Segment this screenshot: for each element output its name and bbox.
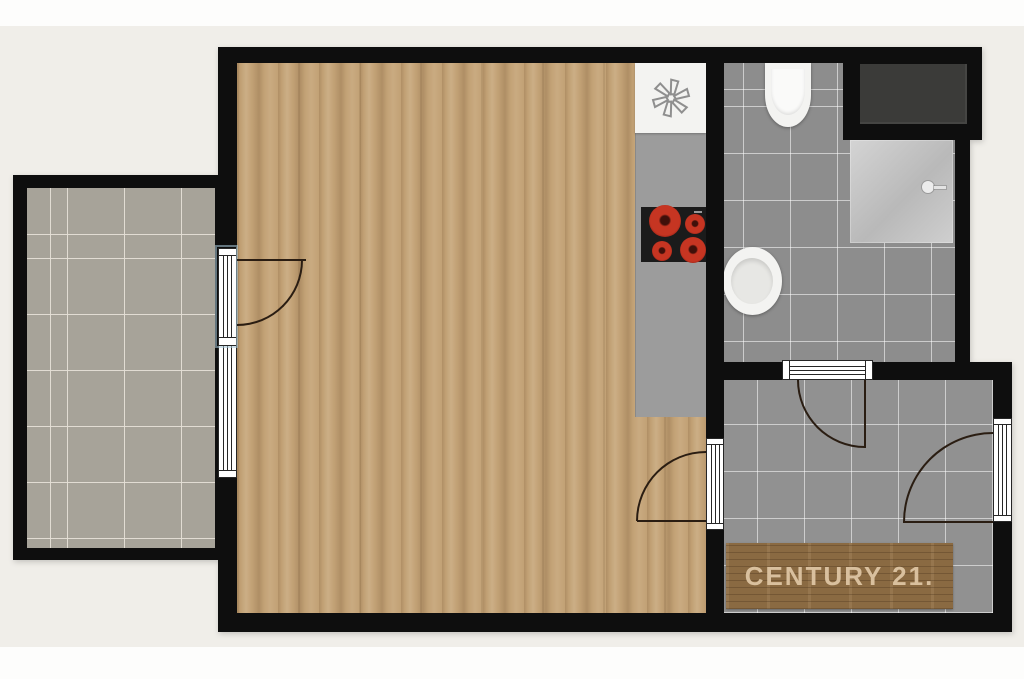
wall-hall-top-left: [724, 362, 782, 380]
burner-icon: [680, 237, 706, 263]
burner-icon: [685, 214, 705, 234]
burner-icon: [652, 241, 672, 261]
toilet-icon: [765, 63, 811, 127]
balcony-door-highlight: [215, 245, 238, 348]
washbasin-icon: [723, 247, 782, 315]
wall-bathroom-right: [955, 140, 970, 362]
shower-arm-icon: [934, 186, 946, 189]
wall-bottom: [218, 613, 1012, 632]
utility-closet-floor: [860, 64, 967, 124]
shower-head-icon: [922, 181, 934, 193]
entry-mat: CENTURY 21.: [726, 543, 953, 609]
stove-cooktop-icon: [641, 207, 706, 262]
frame-cap: [706, 523, 724, 530]
balcony-floor: [27, 188, 215, 548]
frame-cap: [993, 418, 1012, 425]
wall-hall-right-lower: [993, 522, 1012, 613]
frame-cap: [218, 470, 237, 478]
shower-stall: [850, 140, 953, 243]
frame-cap: [782, 360, 790, 380]
century21-watermark: CENTURY 21.: [745, 561, 935, 592]
wall-top: [218, 47, 982, 63]
frame-cap: [993, 515, 1012, 522]
frame-cap: [865, 360, 873, 380]
kitchen-sink: [635, 63, 706, 133]
sink-drain-icon: [635, 63, 706, 133]
wall-hall-left-lower: [706, 530, 724, 613]
floor-plan: CENTURY 21.: [0, 0, 1024, 679]
frame-cap: [706, 438, 724, 445]
burner-icon: [649, 205, 681, 237]
entry-door-frame: [993, 418, 1012, 522]
wall-hall-right-upper: [993, 378, 1012, 418]
wall-left-upper: [218, 63, 237, 248]
wall-left-lower: [218, 478, 237, 613]
wall-kitchen-bathroom: [706, 63, 724, 362]
bathroom-door-frame: [782, 360, 873, 380]
hallway-door-frame: [706, 438, 724, 530]
wall-hall-left-upper: [706, 362, 724, 438]
floor-plan-canvas: CENTURY 21.: [0, 0, 1024, 679]
wall-hall-top-right: [873, 362, 1012, 380]
